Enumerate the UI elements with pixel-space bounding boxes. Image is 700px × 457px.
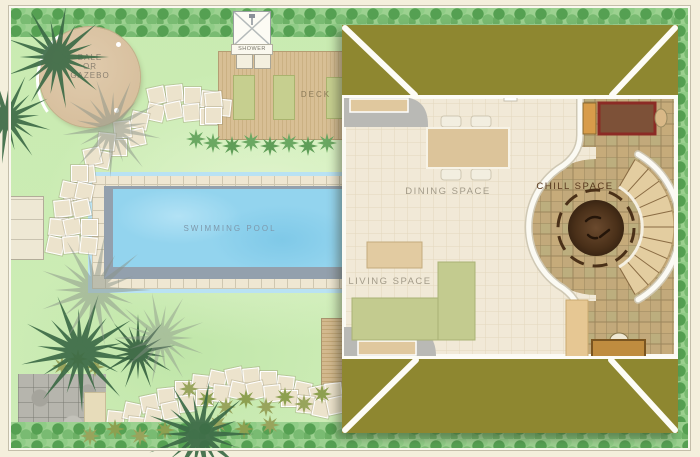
shrub [260,415,280,435]
shower-mat [254,54,271,69]
gazebo-post [116,42,121,47]
shrub [186,129,206,149]
daybed [583,103,667,134]
shower-mat [236,54,253,69]
stepping-stone [205,107,222,124]
stepping-stone [53,199,72,218]
shrub [241,132,261,152]
chill-space-label: CHILL SPACE [536,181,613,192]
palm-shadow [62,78,162,178]
palm-shadow [114,292,206,384]
shrub [105,419,125,439]
outdoor-shower [233,11,271,46]
doorway [566,300,588,357]
stepping-stone [184,87,201,104]
dining-space-label: DINING SPACE [405,186,490,197]
stepping-stone [163,100,183,120]
shrub [275,387,295,407]
shrub [317,133,337,153]
stepping-stone [71,198,91,218]
stepping-stone [165,84,184,103]
pool-label: SWIMMING POOL [113,224,347,233]
deck-label: DECK [290,90,342,99]
kitchen-counter-top [344,97,428,127]
floor-plan-overlay: DINING SPACE CHILL SPACE LIVING SPACE [342,25,678,433]
shrub [279,133,299,153]
shrub [203,133,223,153]
shrub [294,394,314,414]
palm-tree [146,380,254,457]
shrub [298,136,318,156]
shrub [80,426,100,446]
palm-tree [0,72,52,164]
shrub [312,384,332,404]
shower-icon [234,12,270,45]
stepping-stone [182,103,201,122]
deck-lounger [233,75,255,120]
shrub [260,136,280,156]
shrub [222,136,242,156]
shrub [256,397,276,417]
living-space-label: LIVING SPACE [348,276,431,287]
site-plan: SWIMMING POOL DECK SHOWER BALE OR GAZEBO [0,0,700,457]
